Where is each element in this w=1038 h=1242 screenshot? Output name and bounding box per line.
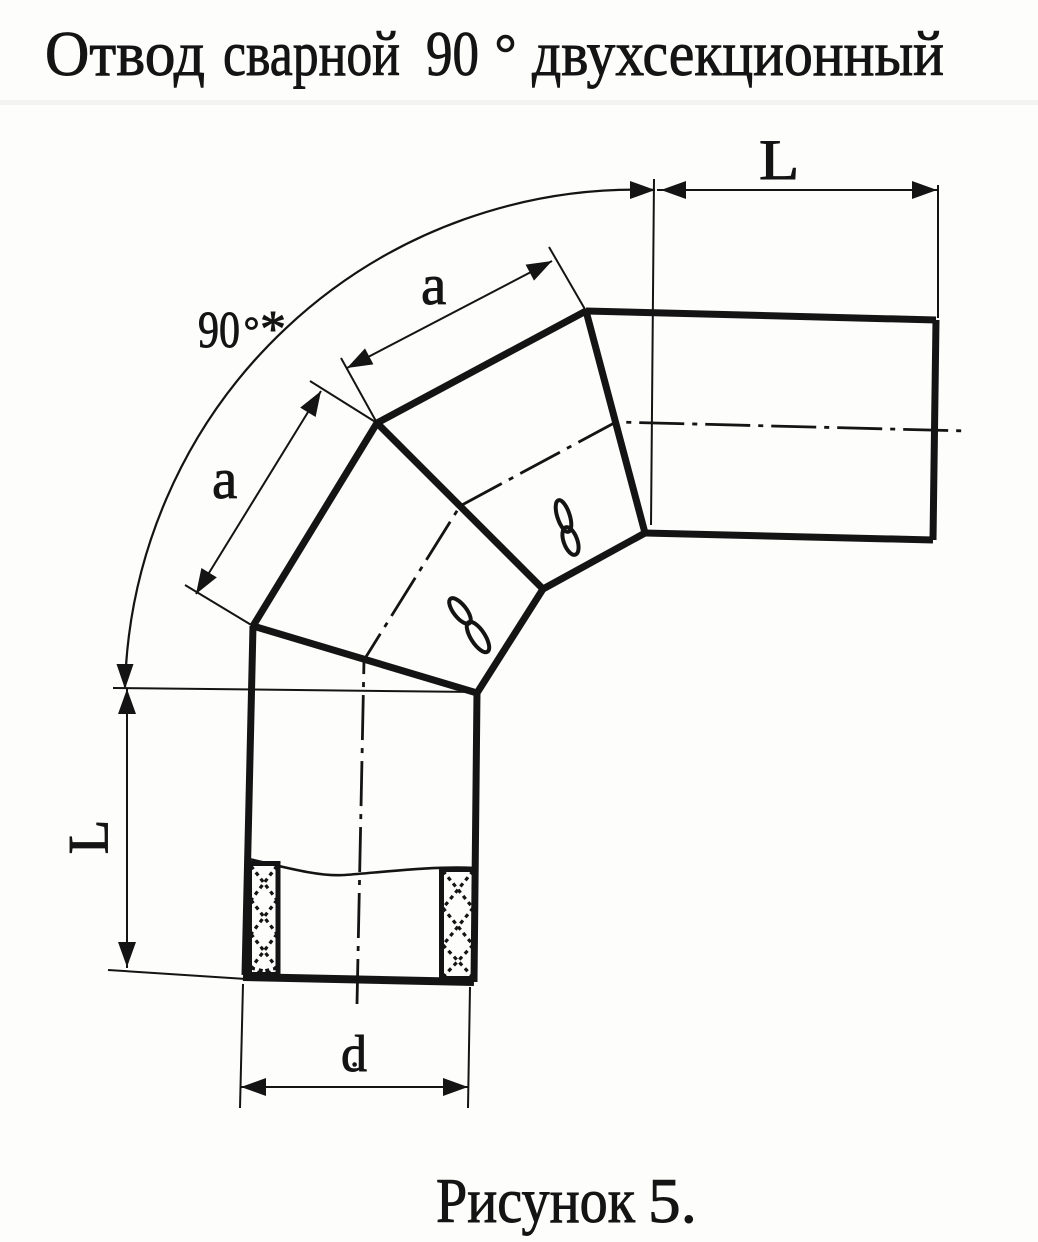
svg-text:90: 90 bbox=[198, 302, 240, 359]
svg-text:90: 90 bbox=[426, 19, 479, 89]
svg-text:5.: 5. bbox=[648, 1166, 697, 1236]
svg-text:L: L bbox=[759, 129, 799, 192]
svg-text:Отвод: Отвод bbox=[45, 19, 205, 89]
svg-text:a: a bbox=[421, 254, 446, 317]
svg-text:a: a bbox=[212, 448, 237, 511]
svg-text:L: L bbox=[58, 820, 121, 855]
svg-text:*: * bbox=[260, 301, 286, 358]
svg-text:двухсекционный: двухсекционный bbox=[532, 19, 944, 89]
svg-text:сварной: сварной bbox=[223, 19, 400, 89]
svg-text:Рисунок: Рисунок bbox=[436, 1166, 635, 1236]
svg-text:d: d bbox=[341, 1026, 367, 1083]
